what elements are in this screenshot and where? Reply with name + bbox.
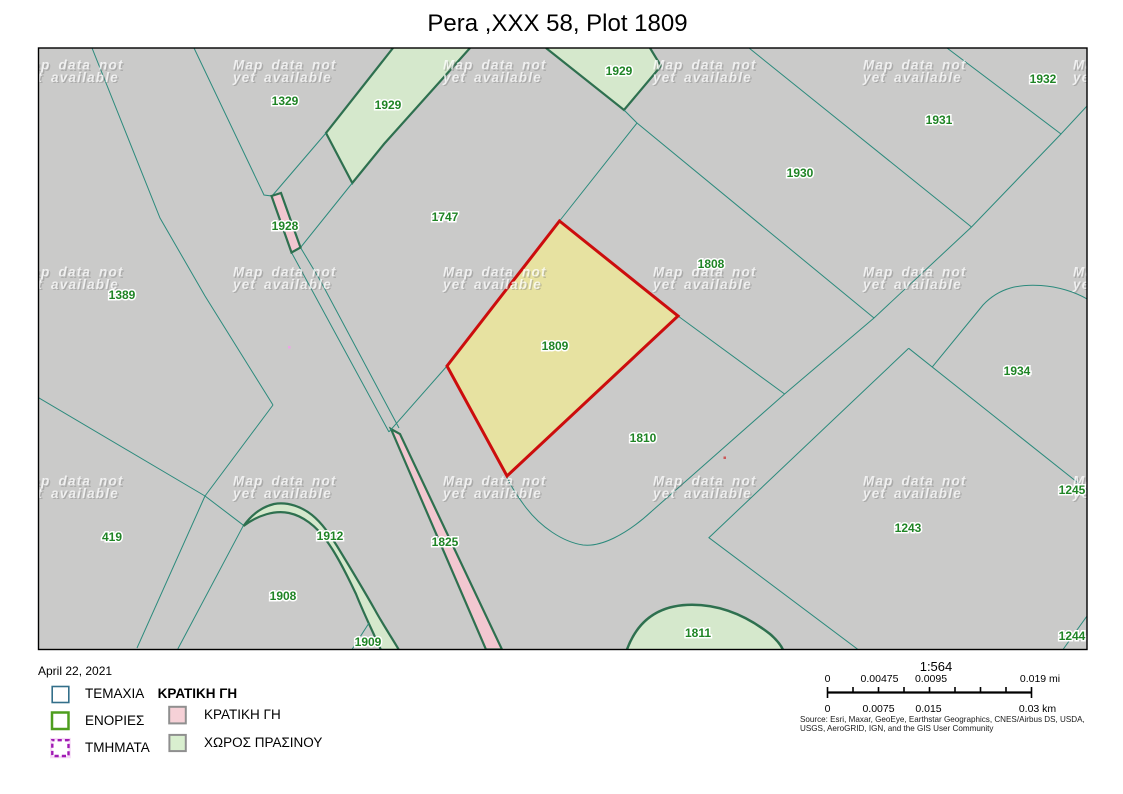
- svg-text:0.0075: 0.0075: [862, 703, 894, 715]
- svg-text:yet available: yet available: [232, 70, 332, 85]
- svg-text:yet available: yet available: [19, 277, 119, 292]
- svg-text:yet available: yet available: [232, 277, 332, 292]
- svg-text:0.0095: 0.0095: [915, 673, 947, 685]
- svg-text:1809: 1809: [542, 339, 569, 353]
- svg-text:1329: 1329: [272, 94, 299, 108]
- svg-text:yet available: yet available: [862, 277, 962, 292]
- svg-text:1808: 1808: [698, 257, 725, 271]
- svg-text:1811: 1811: [685, 626, 711, 640]
- svg-text:1825: 1825: [432, 535, 459, 549]
- svg-text:1244: 1244: [1059, 629, 1086, 643]
- svg-text:1747: 1747: [432, 210, 459, 224]
- svg-text:1909: 1909: [355, 635, 382, 649]
- svg-text:yet available: yet available: [442, 277, 542, 292]
- svg-text:0: 0: [825, 673, 831, 685]
- svg-text:yet available: yet available: [1072, 70, 1123, 85]
- svg-text:yet available: yet available: [1072, 277, 1123, 292]
- svg-text:1930: 1930: [787, 166, 814, 180]
- svg-text:1389: 1389: [109, 288, 136, 302]
- svg-text:0.03 km: 0.03 km: [1019, 703, 1057, 715]
- svg-text:1245: 1245: [1059, 483, 1086, 497]
- svg-text:yet available: yet available: [19, 486, 119, 501]
- svg-text:1929: 1929: [375, 98, 402, 112]
- svg-text:0.019 mi: 0.019 mi: [1020, 673, 1060, 685]
- svg-text:0.00475: 0.00475: [861, 673, 899, 685]
- svg-text:yet available: yet available: [652, 277, 752, 292]
- svg-text:yet available: yet available: [232, 486, 332, 501]
- svg-text:1929: 1929: [606, 64, 633, 78]
- svg-text:yet available: yet available: [862, 486, 962, 501]
- svg-text:1810: 1810: [630, 431, 657, 445]
- svg-text:1912: 1912: [317, 529, 344, 543]
- svg-text:1934: 1934: [1004, 364, 1031, 378]
- svg-text:0: 0: [825, 703, 831, 715]
- svg-text:yet available: yet available: [652, 70, 752, 85]
- svg-text:1928: 1928: [272, 219, 299, 233]
- svg-text:1932: 1932: [1030, 72, 1057, 86]
- svg-text:yet available: yet available: [652, 486, 752, 501]
- svg-text:419: 419: [102, 530, 122, 544]
- svg-text:0.015: 0.015: [915, 703, 941, 715]
- svg-text:yet available: yet available: [442, 486, 542, 501]
- svg-text:1931: 1931: [926, 113, 953, 127]
- svg-text:yet available: yet available: [862, 70, 962, 85]
- svg-text:1908: 1908: [270, 589, 297, 603]
- svg-text:1243: 1243: [895, 521, 922, 535]
- svg-text:yet available: yet available: [442, 70, 542, 85]
- svg-text:yet available: yet available: [19, 70, 119, 85]
